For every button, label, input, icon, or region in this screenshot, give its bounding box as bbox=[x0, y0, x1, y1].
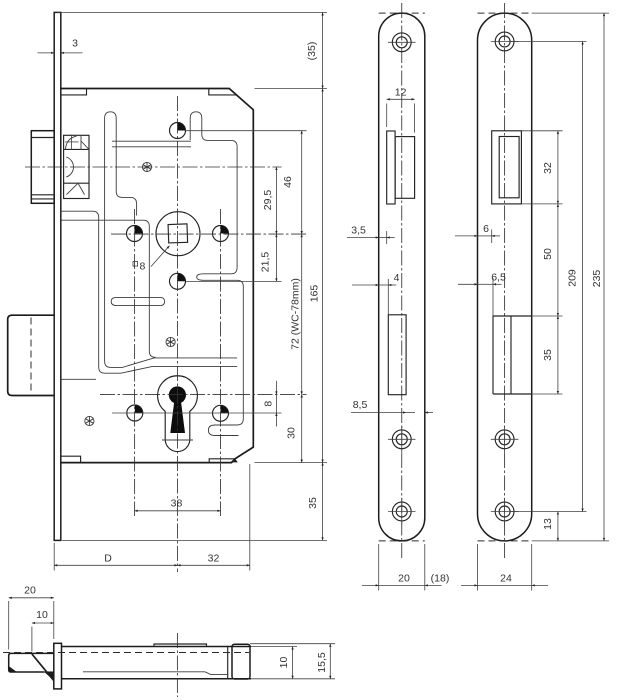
svg-text:8: 8 bbox=[263, 401, 275, 407]
svg-text:D: D bbox=[104, 553, 112, 565]
svg-text:32: 32 bbox=[542, 162, 554, 174]
svg-text:15,5: 15,5 bbox=[316, 652, 328, 673]
svg-text:30: 30 bbox=[286, 427, 298, 439]
svg-text:35: 35 bbox=[542, 349, 554, 361]
svg-text:3: 3 bbox=[72, 38, 78, 50]
svg-text:209: 209 bbox=[567, 269, 579, 287]
svg-text:72 (WC-78mm): 72 (WC-78mm) bbox=[290, 278, 302, 350]
svg-text:35: 35 bbox=[307, 497, 319, 509]
svg-text:8: 8 bbox=[140, 261, 146, 273]
svg-text:46: 46 bbox=[282, 176, 294, 188]
svg-text:32: 32 bbox=[208, 553, 220, 565]
svg-text:20: 20 bbox=[398, 573, 410, 585]
svg-text:6,5: 6,5 bbox=[491, 271, 506, 283]
svg-text:6: 6 bbox=[483, 223, 489, 235]
svg-text:20: 20 bbox=[24, 585, 36, 597]
svg-text:38: 38 bbox=[171, 498, 183, 510]
svg-text:24: 24 bbox=[500, 573, 512, 585]
svg-text:4: 4 bbox=[394, 272, 400, 284]
svg-text:8,5: 8,5 bbox=[353, 399, 368, 411]
svg-text:(18): (18) bbox=[431, 573, 450, 585]
svg-text:29,5: 29,5 bbox=[262, 190, 274, 211]
svg-text:235: 235 bbox=[591, 270, 603, 288]
svg-text:(35): (35) bbox=[306, 42, 318, 61]
svg-text:21,5: 21,5 bbox=[260, 252, 272, 273]
svg-text:50: 50 bbox=[542, 248, 554, 260]
svg-text:12: 12 bbox=[395, 87, 407, 99]
svg-text:3,5: 3,5 bbox=[351, 225, 366, 237]
svg-text:13: 13 bbox=[542, 518, 554, 530]
svg-text:165: 165 bbox=[309, 285, 321, 303]
svg-text:10: 10 bbox=[36, 609, 48, 621]
svg-text:10: 10 bbox=[278, 657, 290, 669]
